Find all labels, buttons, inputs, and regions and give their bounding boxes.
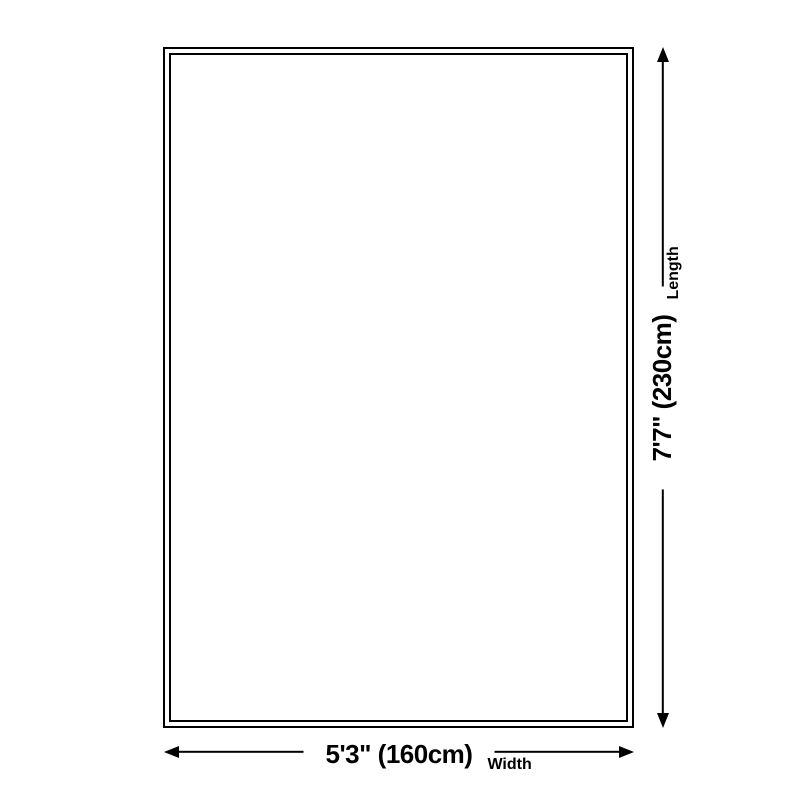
width-value: 5'3" (160cm) [326, 739, 473, 769]
length-dimension-label: 7'7" (230cm) Length [648, 286, 678, 489]
length-dimension-arrow: 7'7" (230cm) Length [650, 47, 676, 728]
product-outline-inner-border [169, 53, 628, 722]
length-value: 7'7" (230cm) [647, 314, 677, 461]
length-axis-name: Length [666, 246, 682, 299]
dimension-diagram: 7'7" (230cm) Length 5'3" (160cm) Width [0, 0, 800, 800]
width-dimension-label: 5'3" (160cm) Width [304, 740, 495, 770]
width-axis-name: Width [487, 757, 531, 773]
arrowhead-down-icon [657, 713, 669, 728]
arrowhead-right-icon [619, 746, 634, 758]
width-dimension-arrow: 5'3" (160cm) Width [164, 745, 634, 758]
product-outline [163, 47, 634, 728]
